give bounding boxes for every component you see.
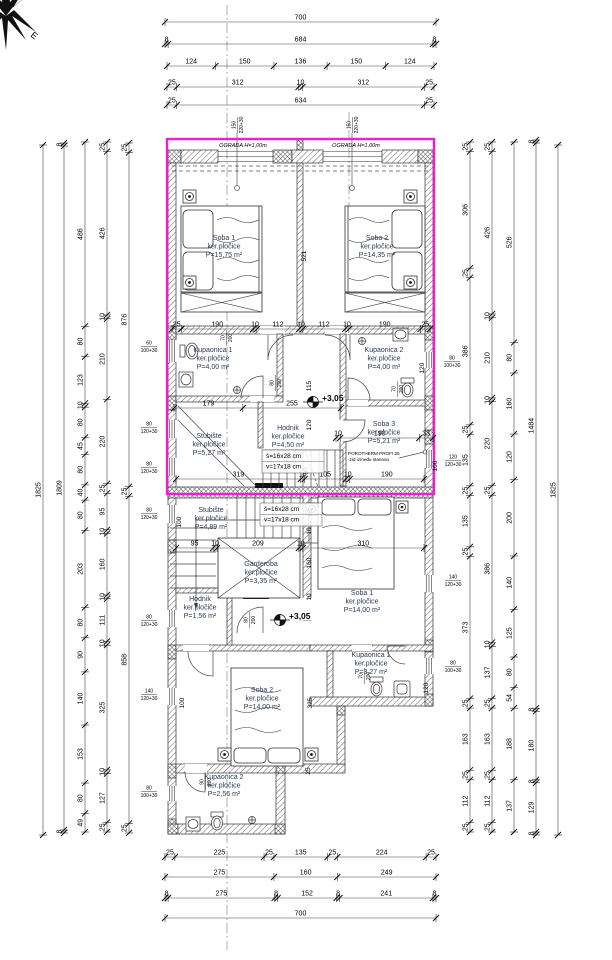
svg-text:150: 150 [347, 121, 353, 130]
dim-label: 319 [233, 472, 245, 479]
dim-label: 1484 [529, 418, 536, 434]
room-label: Stubišteker.pločiceP=4,89 m² [194, 507, 227, 531]
dim-col: 1825 [551, 142, 563, 838]
free-dim-label: 100 [432, 460, 439, 471]
dim-label: 25 [100, 485, 107, 493]
dim-label: 112 [272, 322, 283, 329]
dim-label: 25 [265, 850, 273, 857]
dim-label: 135 [295, 850, 307, 857]
opening-spec-label: 120120+30 [445, 455, 462, 469]
compass-east-label: E [29, 30, 40, 42]
dim-label: 25 [463, 426, 470, 434]
dim-label: 33 [422, 431, 430, 438]
dim-label: 312 [358, 80, 370, 87]
svg-text:80: 80 [449, 356, 455, 362]
dim-row: 124150136150124 [164, 59, 437, 71]
dim-label: 124 [404, 59, 416, 66]
dim-label: 25 [173, 322, 181, 329]
dim-label: 25 [166, 850, 174, 857]
dim-label: 426 [485, 227, 492, 239]
dim-col: 818098 [57, 140, 69, 836]
opening-spec-label: 80100+30 [445, 661, 462, 675]
dim-label: 249 [381, 870, 393, 877]
svg-text:140: 140 [449, 575, 458, 581]
dim-label: 180 [529, 740, 536, 752]
room-label: Garderobaker.pločiceP=3,35 m² [244, 561, 278, 585]
dim-col: 254261021022025951016010111103251012725 [100, 139, 112, 835]
dim-label: 137 [485, 666, 492, 678]
opening-spec-label: 80120+30 [141, 462, 158, 476]
dim-label: 45 [78, 442, 85, 450]
dim-col: 258762585825 [122, 140, 134, 836]
dim-label: 634 [295, 98, 307, 105]
dim-label: 275 [215, 891, 227, 898]
porotherm-note: POROTHERM PROFI 25-zid između stanova [348, 451, 400, 462]
dim-label: 125 [507, 627, 514, 639]
dim-label: 526 [507, 236, 514, 248]
stair-spec-box: š=16x28 cmv=17x18 cm [260, 503, 322, 526]
dim-label: 160 [300, 870, 312, 877]
svg-text:120: 120 [449, 455, 458, 461]
svg-text:120+30: 120+30 [141, 515, 158, 521]
dim-label: 112 [318, 322, 329, 329]
sink-icon [394, 681, 410, 697]
dim-label: 373 [463, 622, 470, 634]
dim-label: 25 [485, 486, 492, 494]
svg-text:70: 70 [221, 335, 227, 341]
dim-label: 25 [485, 143, 492, 151]
dim-label: 25 [485, 771, 492, 779]
dim-label: 220 [485, 438, 492, 450]
svg-text:60: 60 [146, 341, 152, 347]
floor-plan-canvas: 7008684812415013615012425312103122525634… [0, 0, 612, 960]
dim-label: 25 [463, 143, 470, 151]
opening-spec-label: 80100+30 [141, 786, 158, 800]
dim-label: 225 [214, 850, 226, 857]
dim-label: 80 [507, 354, 514, 362]
dim-label: 129 [529, 801, 536, 813]
dim-col: 2530625386251352513525373251632511225 [463, 139, 475, 835]
dim-label: 486 [78, 228, 85, 240]
dim-label: 310 [358, 541, 370, 548]
dim-label: 136 [295, 59, 307, 66]
dim-label: 1825 [551, 482, 558, 498]
dim-label: 40 [78, 489, 85, 497]
svg-text:POROTHERM PROFI 25: POROTHERM PROFI 25 [348, 451, 400, 456]
dim-label: 25 [425, 80, 433, 87]
dim-row: 275160249 [162, 870, 439, 882]
svg-text:100+30: 100+30 [445, 668, 462, 674]
ograda-label: OGRADA H=1,00m [332, 143, 380, 149]
room-label: Kupaonica 2ker.pločiceP=2,56 m² [205, 774, 244, 798]
wardrobe-upper-right [345, 293, 425, 312]
dim-label: 140 [507, 577, 514, 589]
free-dim-label: 100 [176, 516, 183, 527]
dim-label: 135 [463, 515, 470, 527]
dim-label: 160 [507, 398, 514, 410]
dim-row: 8275815282418 [162, 891, 439, 903]
dim-label: 190 [381, 472, 393, 479]
dim-label: 54 [507, 694, 514, 702]
room-label: Soba 3ker.pločiceP=5,21 m² [367, 421, 400, 445]
dim-label: 163 [463, 733, 470, 745]
dim-label: 10 [297, 80, 305, 87]
dim-label: 10 [485, 396, 492, 404]
dim-label: 200 [507, 512, 514, 524]
svg-text:-zid između stanova: -zid između stanova [348, 457, 389, 462]
dim-col: 526801601202001401258054188137 [507, 139, 519, 835]
dim-label: 10 [100, 639, 107, 647]
dim-label: 150 [239, 59, 251, 66]
svg-text:š=16x28 cm: š=16x28 cm [264, 506, 299, 513]
dim-row: 86848 [162, 37, 439, 49]
compass-north-icon [0, 0, 36, 50]
svg-text:200: 200 [277, 379, 283, 388]
dim-label: 209 [252, 541, 264, 548]
svg-text:120+30: 120+30 [141, 429, 158, 435]
dim-label: 124 [185, 59, 197, 66]
dim-row: 2563425 [164, 98, 437, 110]
svg-text:200: 200 [399, 385, 405, 394]
room-label: Hodnikker.pločiceP=4,50 m² [271, 425, 304, 449]
free-dim-label: 160 [306, 557, 313, 568]
dim-label: 80 [78, 511, 85, 519]
free-dim-label: 120 [419, 362, 426, 373]
dim-row: 25225251352522425 [162, 850, 439, 862]
dim-label: 255 [286, 401, 298, 408]
ograda-label: OGRADA H=1,00m [219, 143, 267, 149]
dim-label: 25 [463, 548, 470, 556]
dim-label: 25 [463, 699, 470, 707]
dim-label: 25 [122, 824, 129, 832]
sink-icon [179, 372, 193, 387]
dim-label: 203 [78, 563, 85, 575]
dim-label: 10 [100, 768, 107, 776]
dim-label: 10 [78, 401, 85, 409]
svg-text:100+30: 100+30 [444, 363, 461, 369]
svg-text:80: 80 [450, 661, 456, 667]
dim-label: 25 [100, 823, 107, 831]
room-label: Kupaonica 1ker.pločiceP=4,00 m² [194, 347, 233, 371]
dim-label: 25 [122, 487, 129, 495]
floor-plan-page: { "drawing": { "accent_color": "#ec1fd2"… [0, 0, 612, 960]
free-dim-label: 100 [179, 697, 186, 708]
dim-label: 25 [425, 98, 433, 105]
dim-label: 190 [379, 322, 391, 329]
svg-text:120+30: 120+30 [141, 622, 158, 628]
dim-label: 80 [507, 668, 514, 676]
opening-spec-label: 80200 [244, 612, 258, 628]
dim-label: 700 [295, 15, 307, 22]
dim-label: 153 [78, 748, 85, 760]
dim-label: 25 [168, 80, 176, 87]
dim-label: 127 [100, 792, 107, 804]
dim-label: 80 [78, 418, 85, 426]
bed-soba2-lower [231, 668, 303, 766]
dim-label: 10 [297, 541, 305, 548]
dim-col: 1825 [36, 142, 48, 838]
level-mark-label: +3,05 [322, 393, 344, 403]
dim-label: 10 [100, 313, 107, 321]
dim-label: 10 [334, 431, 342, 438]
free-dim-label: 25 [305, 767, 312, 775]
dim-row: 700 [162, 911, 439, 923]
stair-spec-box: š=16x28 cmv=17x18 cm [262, 450, 324, 473]
sink-icon [186, 817, 200, 831]
svg-text:80: 80 [146, 422, 152, 428]
dim-label: 111 [100, 615, 107, 626]
dim-label: 25 [100, 143, 107, 151]
dim-label: 25 [168, 98, 176, 105]
dim-col: 2542610210102202538610137251632511225 [485, 139, 497, 835]
dim-label: 426 [100, 227, 107, 239]
dim-label: 140 [78, 693, 85, 705]
dim-label: 25 [122, 144, 129, 152]
svg-text:100+30: 100+30 [141, 793, 158, 799]
opening-spec-label: 60100+30 [141, 341, 158, 355]
dim-label: 112 [463, 795, 470, 806]
dim-label: 135 [463, 454, 470, 466]
free-dim-label: 115 [306, 380, 313, 391]
dim-label: 25 [485, 823, 492, 831]
dim-label: 49 [78, 819, 85, 827]
room-label: Stubišteker.pločiceP=5,27 m² [192, 433, 225, 457]
dim-label: 179 [203, 401, 215, 408]
dim-col: 4868012310804580408020380901401538049 [78, 139, 90, 835]
dim-label: 25 [463, 771, 470, 779]
dim-label: 224 [376, 850, 388, 857]
dim-label: 95 [191, 541, 199, 548]
dim-label: 112 [485, 795, 492, 806]
dim-label: 220 [100, 436, 107, 448]
dim-row: 700 [162, 15, 439, 27]
svg-text:140: 140 [145, 689, 154, 695]
svg-text:70: 70 [392, 386, 398, 392]
bed-soba1-lower [318, 497, 394, 589]
free-dim-label: 120 [306, 419, 313, 430]
free-dim-label: 521 [301, 250, 308, 261]
dim-label: 25 [463, 269, 470, 277]
dim-label: 25 [485, 699, 492, 707]
dim-label: 25 [463, 487, 470, 495]
dim-row: 253121031225 [164, 80, 437, 92]
dim-label: 10 [344, 472, 352, 479]
dim-label: 120 [507, 451, 514, 463]
room-label: Hodnikker.pločičeP=1,56 m² [183, 596, 216, 620]
svg-text:220+30: 220+30 [354, 116, 360, 133]
svg-text:120+30: 120+30 [141, 469, 158, 475]
dim-label: 210 [100, 353, 107, 365]
dim-label: 90 [78, 651, 85, 659]
svg-text:200: 200 [228, 334, 234, 343]
dim-label: 10 [211, 541, 219, 548]
dim-label: 684 [295, 37, 307, 44]
free-dim-label: 120 [423, 682, 430, 693]
dim-label: 150 [350, 59, 362, 66]
dim-label: 325 [100, 702, 107, 714]
wardrobe-upper-left [181, 293, 262, 312]
dim-label: 80 [78, 619, 85, 627]
dim-label: 123 [78, 374, 85, 386]
svg-text:š=16x28 cm: š=16x28 cm [266, 453, 301, 460]
dim-label: 152 [301, 891, 313, 898]
svg-text:v=17x18 cm: v=17x18 cm [264, 517, 299, 524]
svg-text:100+30: 100+30 [141, 348, 158, 354]
dim-label: 25 [421, 322, 429, 329]
dim-label: 95 [100, 508, 107, 516]
dim-label: 386 [485, 563, 492, 575]
room-label: Kupaonica 1ker.pločiceP=3,27 m² [352, 652, 391, 676]
dim-label: 210 [485, 352, 492, 364]
svg-text:80: 80 [146, 786, 152, 792]
svg-text:150: 150 [232, 121, 238, 130]
dim-label: 1825 [36, 482, 43, 498]
level-mark-label: +3,05 [289, 611, 311, 621]
dim-label: 241 [380, 891, 392, 898]
dim-label: 137 [507, 800, 514, 812]
svg-text:220+30: 220+30 [239, 116, 245, 133]
dim-label: 25 [328, 850, 336, 857]
room-label: Kupaonica 2ker.pločiceP=4,00 m² [365, 347, 404, 371]
dim-label: 858 [122, 654, 129, 666]
toilet-icon [211, 812, 223, 830]
dim-label: 80 [78, 338, 85, 346]
dim-label: 25 [427, 850, 435, 857]
dim-label: 312 [232, 80, 244, 87]
svg-text:80: 80 [146, 462, 152, 468]
dim-label: 25 [463, 823, 470, 831]
free-dim-label: 10 [306, 527, 313, 535]
room-label: Soba 1ker.pločiceP=14,00 m² [344, 590, 381, 614]
dim-label: 386 [463, 345, 470, 357]
opening-spec-label: 140120+30 [445, 575, 462, 589]
dim-label: 10 [485, 640, 492, 648]
dim-label: 876 [122, 314, 129, 326]
svg-text:120+30: 120+30 [141, 696, 158, 702]
opening-spec-label: 80120+30 [141, 422, 158, 436]
svg-text:200: 200 [251, 616, 257, 625]
opening-spec-label: 80100+30 [444, 356, 461, 370]
svg-text:80: 80 [270, 380, 276, 386]
sink-icon [393, 328, 408, 341]
dim-label: 10 [100, 593, 107, 601]
opening-spec-label: 150220+30 [232, 116, 246, 133]
dim-label: 190 [211, 322, 223, 329]
dim-label: 163 [485, 733, 492, 745]
dim-col: 81484818081298 [529, 137, 541, 838]
dim-label: 80 [78, 466, 85, 474]
opening-spec-label: 80120+30 [141, 615, 158, 629]
dim-label: 80 [78, 794, 85, 802]
free-dim-label: 325 [307, 697, 314, 708]
dim-label: 1809 [57, 480, 64, 496]
opening-spec-label: 140120+30 [141, 689, 158, 703]
dim-label: 10 [100, 528, 107, 536]
svg-text:v=17x18 cm: v=17x18 cm [266, 464, 301, 471]
dim-label: 160 [100, 558, 107, 570]
dim-label: 188 [507, 738, 514, 750]
opening-spec-label: 80120+30 [141, 508, 158, 522]
dim-label: 306 [463, 204, 470, 216]
dim-label: 700 [295, 911, 307, 918]
svg-text:80: 80 [146, 508, 152, 514]
svg-text:80: 80 [244, 617, 250, 623]
svg-text:120+30: 120+30 [445, 582, 462, 588]
opening-spec-label: 150220+30 [347, 116, 361, 133]
svg-text:120+30: 120+30 [445, 462, 462, 468]
svg-text:80: 80 [146, 615, 152, 621]
dim-label: 275 [214, 870, 226, 877]
dim-label: 10 [485, 312, 492, 320]
free-dim-label: 10 [306, 593, 313, 601]
